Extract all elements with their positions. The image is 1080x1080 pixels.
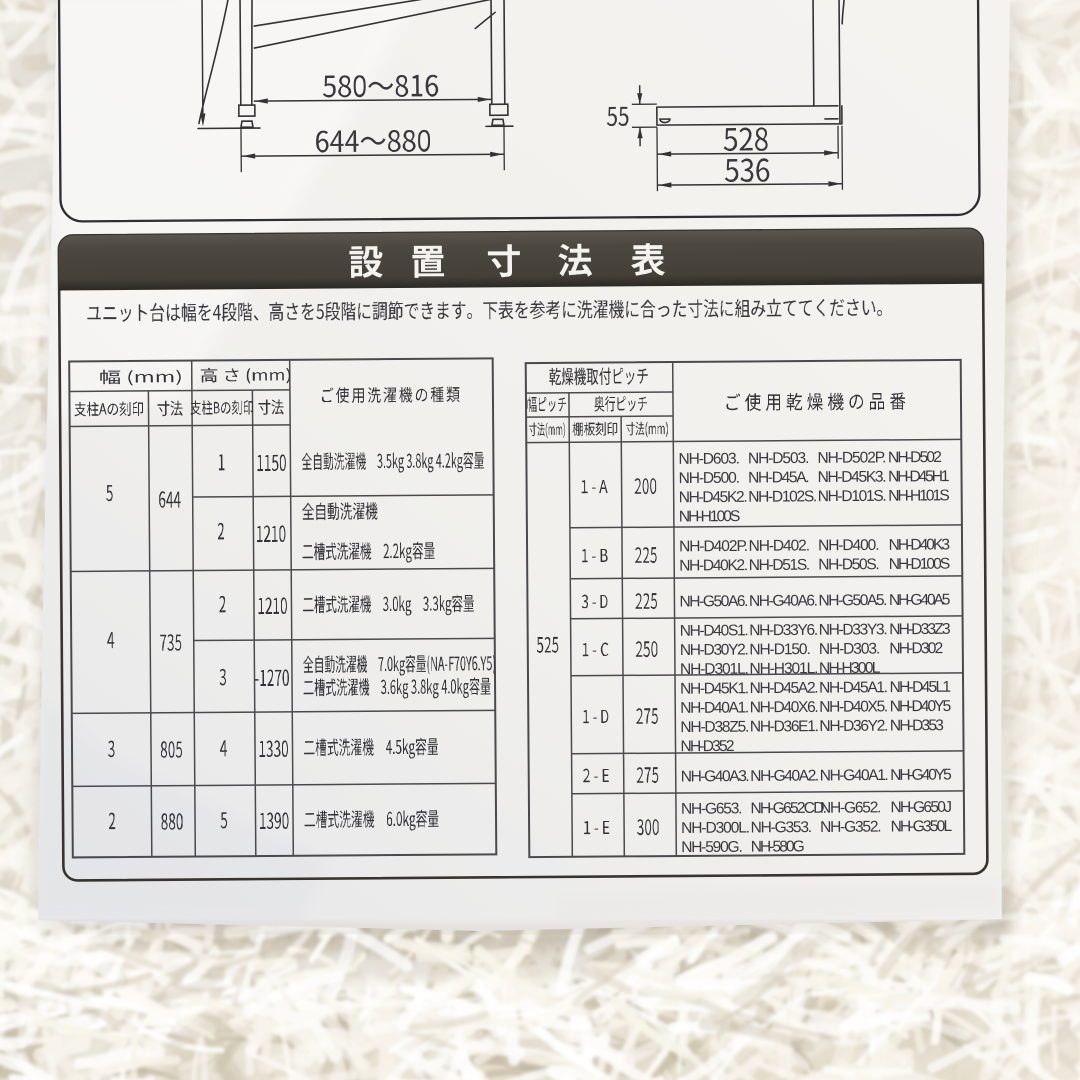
svg-text:NH-D30Y2.: NH-D30Y2. — [680, 641, 749, 659]
svg-text:NH-D402.: NH-D402. — [748, 537, 810, 554]
svg-text:NH-G653.: NH-G653. — [681, 800, 743, 817]
svg-text:NH-D45K3.: NH-D45K3. — [817, 469, 886, 487]
svg-text:NH-D301L.: NH-D301L. — [680, 661, 749, 679]
svg-text:NH-D45A.: NH-D45A. — [748, 469, 810, 486]
svg-text:NH-D502: NH-D502 — [888, 449, 942, 466]
svg-text:NH-D38Z5.: NH-D38Z5. — [680, 719, 749, 737]
svg-text:NH-580G: NH-580G — [751, 838, 805, 855]
svg-text:NH-G40A1.: NH-G40A1. — [820, 767, 889, 785]
svg-text:NH-G40A5: NH-G40A5 — [889, 591, 951, 608]
svg-text:NH-G40Y5: NH-G40Y5 — [890, 766, 952, 783]
svg-text:NH-D400.: NH-D400. — [818, 537, 880, 554]
svg-text:NH-G50A5.: NH-G50A5. — [818, 592, 887, 610]
svg-text:NH-G650J: NH-G650J — [890, 799, 952, 816]
svg-text:NH-D45K2.: NH-D45K2. — [679, 489, 748, 507]
svg-text:NH-G40A2.: NH-G40A2. — [750, 767, 819, 785]
svg-text:NH-G350L: NH-G350L — [891, 818, 953, 835]
svg-text:NH-D40Y5: NH-D40Y5 — [890, 698, 952, 715]
svg-text:NH-D500.: NH-D500. — [678, 470, 740, 487]
svg-text:NH-G652.: NH-G652. — [820, 799, 882, 816]
svg-text:NH-D33Y6.: NH-D33Y6. — [749, 622, 818, 640]
svg-text:NH-D102S.: NH-D102S. — [748, 488, 817, 506]
svg-text:NH-D45K1.: NH-D45K1. — [680, 680, 749, 698]
svg-text:NH-D45L1: NH-D45L1 — [890, 679, 952, 696]
svg-text:NH-D45H1: NH-D45H1 — [888, 468, 950, 485]
svg-text:NH-H301L.: NH-H301L. — [749, 660, 818, 678]
svg-text:NH-D51S.: NH-D51S. — [749, 557, 811, 574]
svg-text:NH-D353: NH-D353 — [890, 717, 944, 734]
svg-text:NH-D302: NH-D302 — [889, 640, 943, 657]
svg-text:NH-D40X5.: NH-D40X5. — [819, 698, 888, 716]
svg-text:NH-D40K3: NH-D40K3 — [888, 536, 950, 553]
svg-text:NH-G652CD.: NH-G652CD. — [750, 800, 827, 818]
svg-text:NH-G40A3.: NH-G40A3. — [681, 768, 750, 786]
svg-text:NH-D36E1.: NH-D36E1. — [750, 718, 819, 736]
svg-text:NH-H300L: NH-H300L — [819, 660, 881, 677]
svg-text:NH-D503.: NH-D503. — [748, 450, 810, 467]
svg-text:NH-D36Y2.: NH-D36Y2. — [819, 718, 888, 736]
svg-text:NH-D40X6.: NH-D40X6. — [750, 699, 819, 717]
svg-text:NH-G50A6.: NH-G50A6. — [679, 593, 748, 611]
svg-text:NH-H101S: NH-H101S — [888, 487, 950, 504]
svg-text:NH-D303.: NH-D303. — [819, 641, 881, 658]
svg-text:NH-590G.: NH-590G. — [681, 839, 743, 856]
svg-text:NH-H100S: NH-H100S — [679, 508, 741, 525]
svg-text:NH-D603.: NH-D603. — [678, 450, 740, 467]
svg-text:NH-D40S1.: NH-D40S1. — [680, 622, 749, 640]
svg-text:NH-D101S.: NH-D101S. — [818, 488, 887, 506]
svg-text:NH-D300L.: NH-D300L. — [681, 819, 750, 837]
svg-text:NH-D150.: NH-D150. — [749, 641, 811, 658]
svg-text:NH-D402P.: NH-D402P. — [679, 538, 748, 556]
svg-text:NH-D100S: NH-D100S — [889, 556, 951, 573]
svg-text:NH-D45A2.: NH-D45A2. — [750, 680, 819, 698]
svg-text:NH-D502P.: NH-D502P. — [817, 449, 886, 467]
svg-text:NH-D33Z3: NH-D33Z3 — [889, 621, 951, 638]
svg-text:NH-D352: NH-D352 — [680, 738, 734, 755]
svg-text:NH-D40A1.: NH-D40A1. — [680, 699, 749, 717]
svg-text:NH-G40A6.: NH-G40A6. — [749, 592, 818, 610]
svg-text:NH-D40K2.: NH-D40K2. — [679, 557, 748, 575]
svg-text:NH-D50S.: NH-D50S. — [818, 556, 880, 573]
svg-text:NH-G352.: NH-G352. — [820, 819, 882, 836]
svg-text:NH-D45A1.: NH-D45A1. — [819, 679, 888, 697]
svg-text:NH-D33Y3.: NH-D33Y3. — [819, 621, 888, 639]
svg-text:NH-G353.: NH-G353. — [751, 819, 813, 836]
